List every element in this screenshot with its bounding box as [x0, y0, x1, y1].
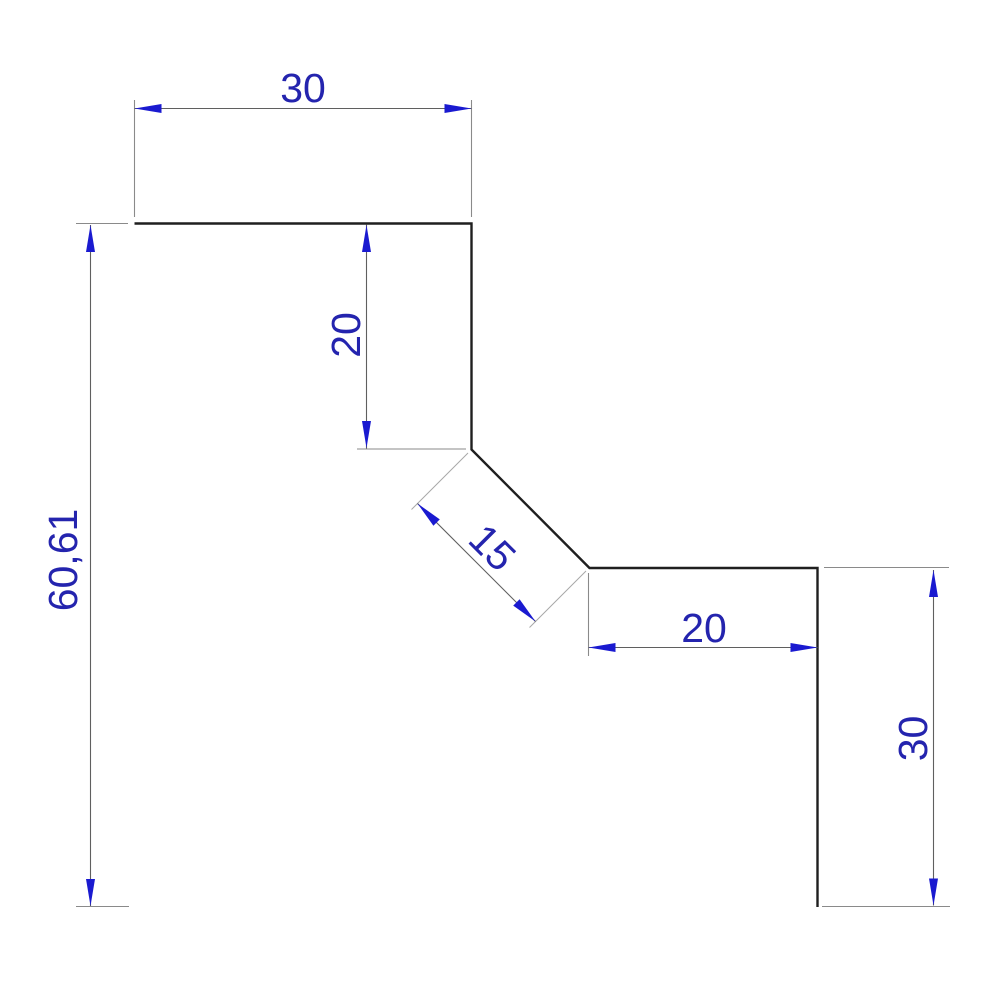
svg-text:20: 20: [323, 312, 369, 358]
svg-text:30: 30: [280, 65, 326, 111]
svg-text:60,61: 60,61: [40, 509, 86, 612]
svg-text:20: 20: [681, 605, 727, 651]
svg-text:30: 30: [890, 716, 936, 762]
